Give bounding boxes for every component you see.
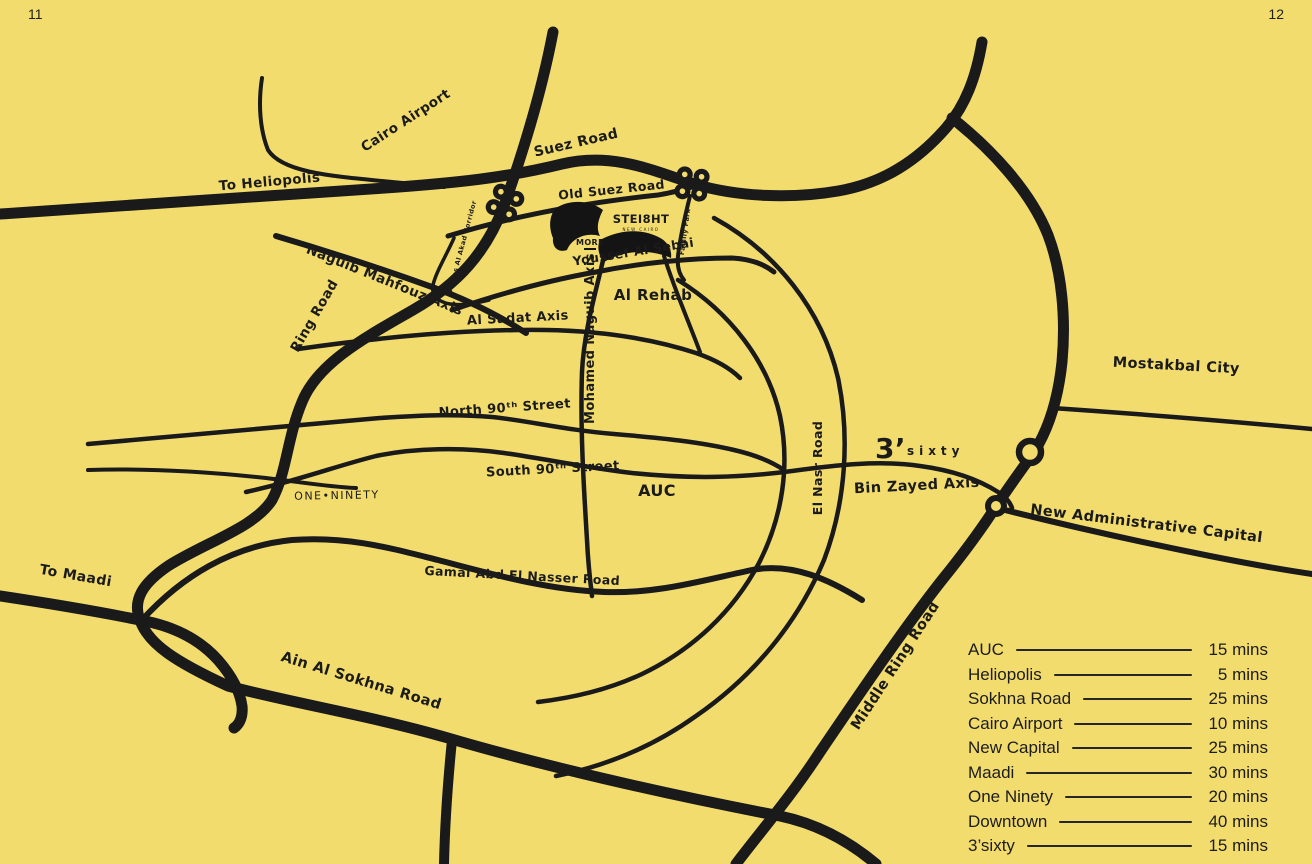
legend-connector-line xyxy=(1059,821,1192,823)
al-rehab-label: Al Rehab xyxy=(614,286,692,304)
mohamed-naguib-axis-label: Mohamed Naguib Axis xyxy=(583,253,598,424)
legend-connector-line xyxy=(1065,796,1192,798)
legend-place: Heliopolis xyxy=(968,665,1042,685)
legend-row: One Ninety 20 mins xyxy=(968,787,1268,807)
legend-connector-line xyxy=(1026,772,1192,774)
auc-label: AUC xyxy=(638,481,676,500)
legend-row: Cairo Airport 10 mins xyxy=(968,714,1268,734)
three-sixty-logo: 3’ s i x t y xyxy=(875,432,960,465)
three-sixty-logo-prefix: 3’ xyxy=(875,432,906,465)
legend-time: 15 mins xyxy=(1202,640,1268,660)
one-ninety-label: ONE•NINETY xyxy=(294,488,380,502)
outer-ring-arc-el-nasr-path xyxy=(556,218,845,776)
legend-connector-line xyxy=(1054,674,1192,676)
suez-road-path xyxy=(0,42,982,214)
travel-time-legend: AUC 15 mins Heliopolis 5 mins Sokhna Roa… xyxy=(968,640,1268,856)
cairo-airport-feeder-path xyxy=(260,78,444,187)
site-name-label: STEI8HT xyxy=(613,212,670,226)
legend-place: Cairo Airport xyxy=(968,714,1062,734)
legend-connector-line xyxy=(1027,845,1192,847)
mostakbal-city-label: Mostakbal City xyxy=(1112,355,1240,378)
legend-place: 3’sixty xyxy=(968,836,1015,856)
middle-ring-road-label: Middle Ring Road xyxy=(848,599,943,733)
legend-row: Downtown 40 mins xyxy=(968,812,1268,832)
el-nasr-road-label: El Nasr Road xyxy=(810,421,825,515)
legend-connector-line xyxy=(1083,698,1192,700)
legend-place: Maadi xyxy=(968,763,1014,783)
legend-connector-line xyxy=(1072,747,1192,749)
legend-row: 3’sixty 15 mins xyxy=(968,836,1268,856)
legend-place: Sokhna Road xyxy=(968,689,1071,709)
legend-place: New Capital xyxy=(968,738,1060,758)
sokhna-south-branch-path xyxy=(444,740,452,864)
legend-place: AUC xyxy=(968,640,1004,660)
legend-time: 40 mins xyxy=(1202,812,1268,832)
north-90th-street-path xyxy=(88,415,784,470)
ring-road-ain-sokhna-road-path xyxy=(137,32,876,864)
legend-place: Downtown xyxy=(968,812,1047,832)
legend-time: 30 mins xyxy=(1202,763,1268,783)
legend-row: New Capital 25 mins xyxy=(968,738,1268,758)
brochure-map-page: 11 12 xyxy=(0,0,1312,864)
legend-connector-line xyxy=(1074,723,1192,725)
ramp-loop-south xyxy=(988,498,1004,514)
site-subtext-label: NEW CAIRO xyxy=(623,227,660,232)
legend-time: 5 mins xyxy=(1202,665,1268,685)
to-maadi-label: To Maadi xyxy=(38,562,113,590)
legend-place: One Ninety xyxy=(968,787,1053,807)
ramp-loop-north xyxy=(1019,441,1041,463)
legend-row: AUC 15 mins xyxy=(968,640,1268,660)
legend-row: Maadi 30 mins xyxy=(968,763,1268,783)
mostakbal-city-road-path xyxy=(1052,408,1312,429)
al-rehab-radial-path xyxy=(664,256,700,352)
legend-connector-line xyxy=(1016,649,1192,651)
bin-zayed-axis-label: Bin Zayed Axis xyxy=(854,475,980,498)
legend-time: 25 mins xyxy=(1202,689,1268,709)
legend-row: Heliopolis 5 mins xyxy=(968,665,1268,685)
legend-time: 15 mins xyxy=(1202,836,1268,856)
legend-row: Sokhna Road 25 mins xyxy=(968,689,1268,709)
south-90th-street-label: South 90ᵗʰ Street xyxy=(486,459,620,481)
neighbor-project-label: MORE xyxy=(576,238,604,247)
cairo-airport-label: Cairo Airport xyxy=(358,86,453,156)
legend-time: 10 mins xyxy=(1202,714,1268,734)
legend-time: 20 mins xyxy=(1202,787,1268,807)
legend-time: 25 mins xyxy=(1202,738,1268,758)
three-sixty-logo-text: s i x t y xyxy=(907,444,960,458)
to-maadi-road-path xyxy=(0,596,242,728)
